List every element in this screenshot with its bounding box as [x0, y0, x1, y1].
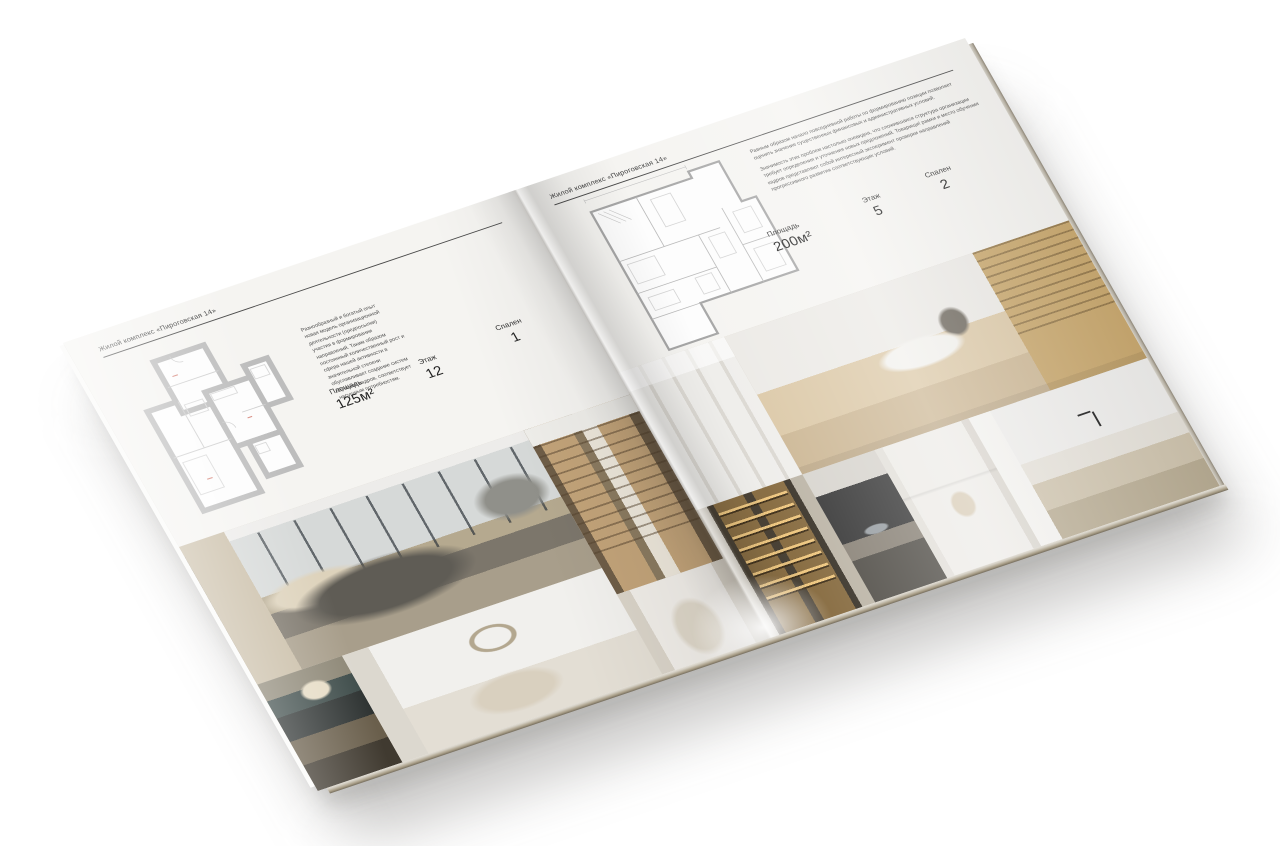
left-page-header-rule — [103, 222, 502, 358]
right-spec-bedrooms: Спален 2 — [910, 160, 974, 200]
magazine-mockup-scene: Жилой комплекс «Пироговская 14» — [0, 0, 1280, 835]
right-spec-floor: Этаж 5 — [844, 186, 908, 226]
left-spec-bedrooms: Спален 1 — [481, 312, 545, 352]
magazine-spread: Жилой комплекс «Пироговская 14» — [63, 38, 1220, 791]
